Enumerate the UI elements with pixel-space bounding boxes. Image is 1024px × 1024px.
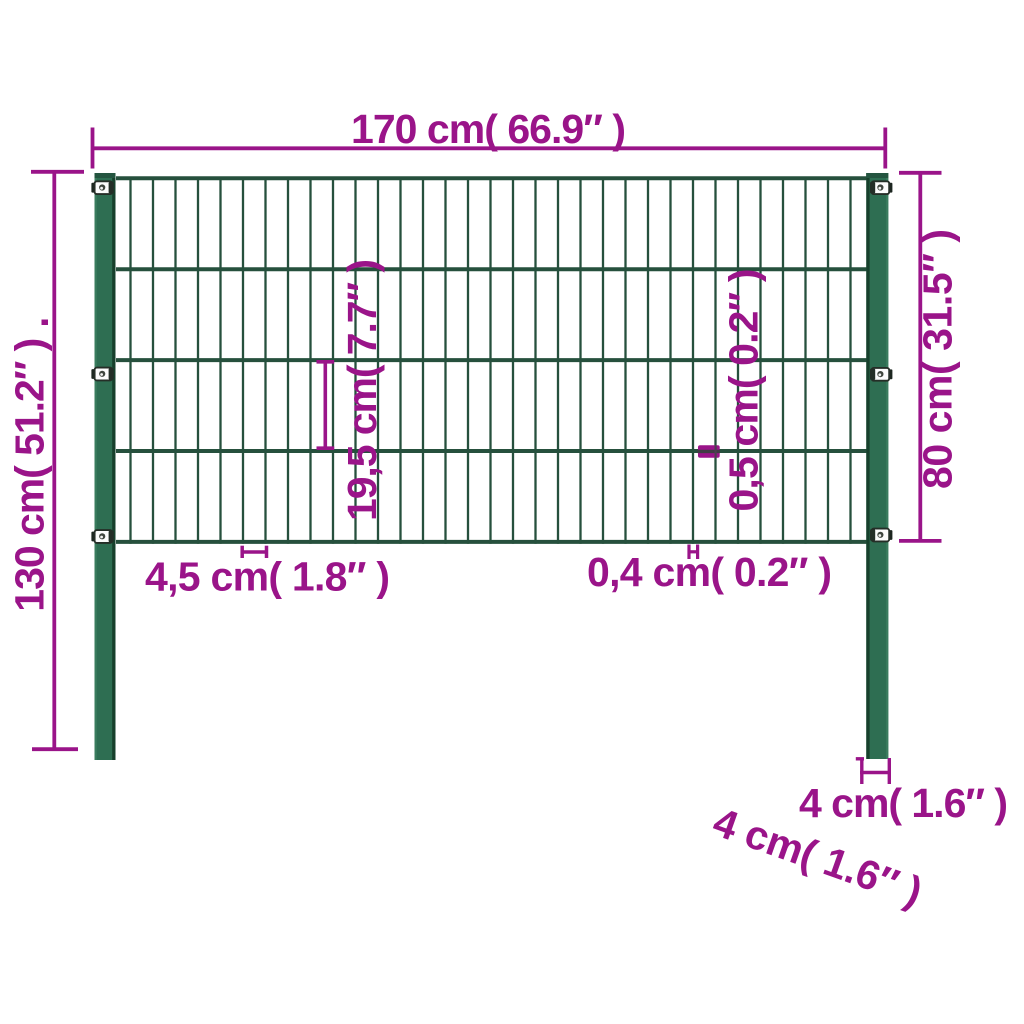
svg-text:0,5 cm( 0.2″ ): 0,5 cm( 0.2″ ) <box>720 269 766 512</box>
svg-text:4 cm( 1.6″ ): 4 cm( 1.6″ ) <box>799 780 1008 826</box>
svg-text:4,5 cm( 1.8″ ): 4,5 cm( 1.8″ ) <box>145 554 390 600</box>
svg-text:80 cm( 31.5″ ): 80 cm( 31.5″ ) <box>915 229 961 489</box>
svg-text:130 cm( 51.2″ ): 130 cm( 51.2″ ) <box>7 338 53 612</box>
svg-text:0,4 cm( 0.2″ ): 0,4 cm( 0.2″ ) <box>587 549 832 595</box>
svg-text:170 cm( 66.9″ ): 170 cm( 66.9″ ) <box>351 106 626 152</box>
svg-text:19,5 cm( 7.7″ ): 19,5 cm( 7.7″ ) <box>339 259 385 521</box>
